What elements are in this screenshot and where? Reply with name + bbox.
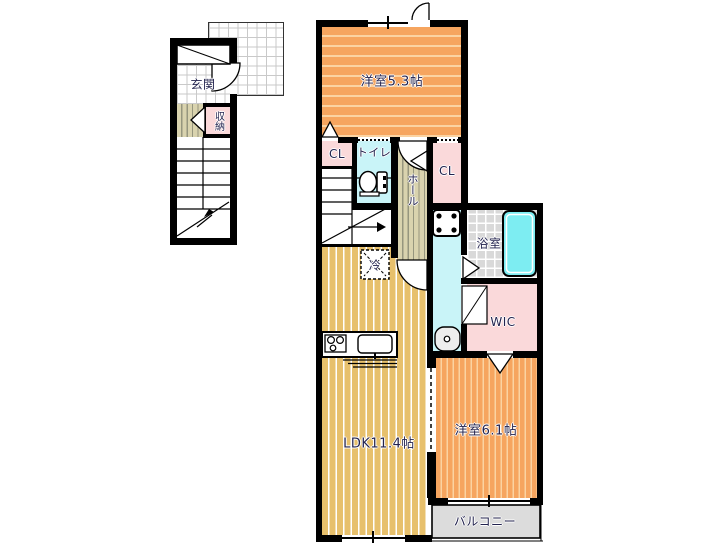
western-room-5-3-label: 洋室5.3帖 [361, 71, 424, 90]
shoe-cabinet [177, 45, 230, 64]
closet-right-label: CL [439, 164, 455, 178]
ldk-label: LDK11.4帖 [343, 433, 415, 452]
walls [170, 20, 543, 542]
western-room-6-1-label: 洋室6.1帖 [455, 420, 518, 439]
kitchen-counter [322, 332, 397, 367]
hall-ldk-door-arc [397, 260, 427, 290]
washing-machine-icon [433, 210, 460, 236]
door-marker-closet-53 [322, 122, 338, 137]
wic-label: WIC [490, 315, 515, 329]
stairs-lower [177, 137, 230, 236]
bathtub-icon [503, 211, 536, 276]
plan-linework [0, 0, 710, 550]
stove-icon [325, 335, 346, 352]
balcony-label: バルコニー [454, 513, 516, 530]
front-door-arc [412, 3, 429, 20]
toilet-label: トイレ [357, 144, 392, 160]
stairs-upper-arrowhead [377, 222, 386, 232]
bathroom-label: 浴室 [476, 235, 501, 252]
door-marker-steps [191, 107, 205, 133]
floor-plan: 玄関 収納 洋室5.3帖 CL トイレ ホール CL 浴室 WIC 冷 LDK1… [0, 0, 710, 550]
washbasin-icon [435, 327, 460, 351]
refrigerator-label: 冷 [369, 257, 382, 274]
hall-label: ホール [404, 174, 420, 207]
wic-door-swing [462, 286, 487, 324]
door-marker-bath [463, 257, 479, 279]
door-marker-wic [487, 354, 513, 373]
closet-left-label: CL [329, 147, 345, 161]
entrance-door-arc [212, 63, 240, 91]
counter-edge-lines [343, 360, 397, 367]
entrance-label: 玄関 [190, 76, 215, 93]
storage-label: 収納 [211, 111, 226, 131]
toilet-icon [360, 172, 388, 197]
